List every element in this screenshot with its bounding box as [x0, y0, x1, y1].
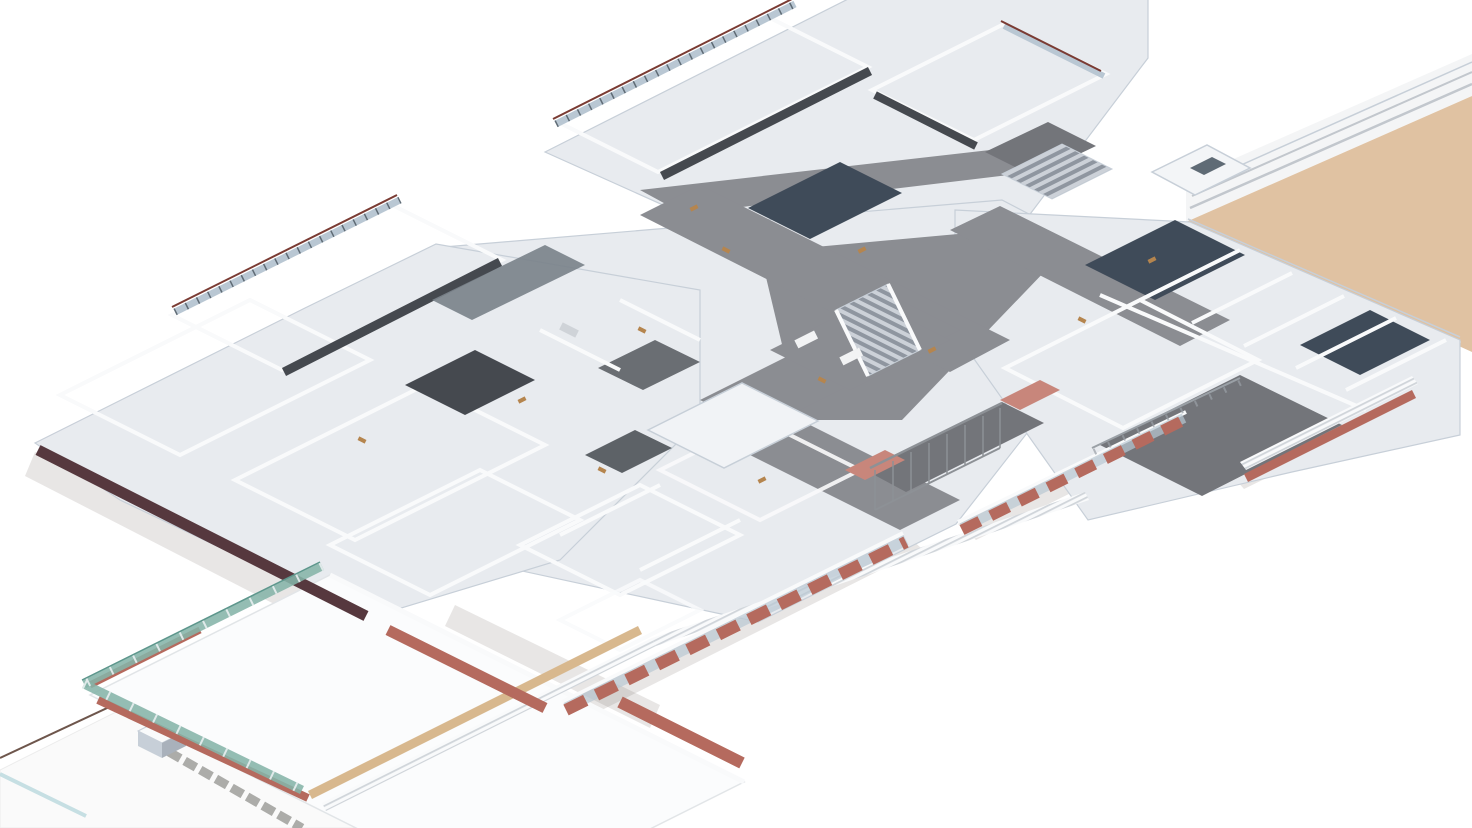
axonometric-building-render [0, 0, 1472, 828]
render-canvas [0, 0, 1472, 828]
